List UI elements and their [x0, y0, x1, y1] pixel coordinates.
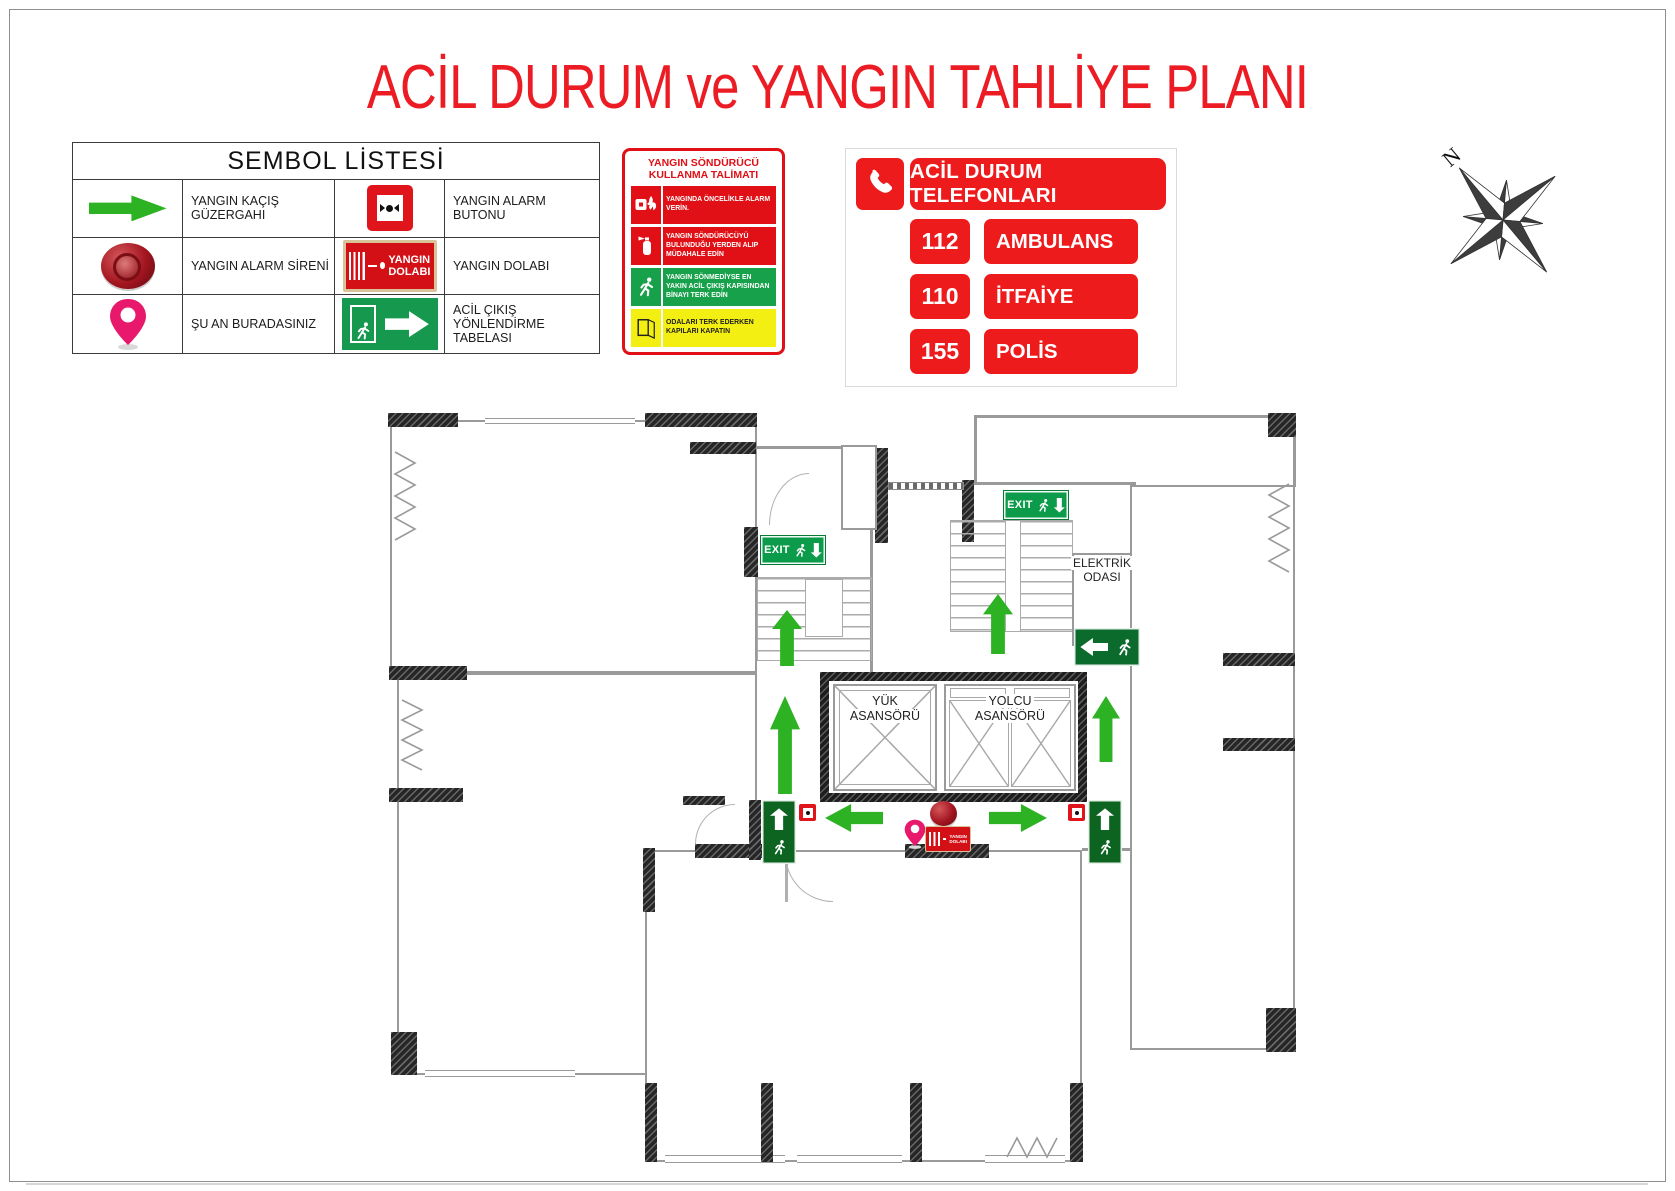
window	[797, 1155, 902, 1163]
instruction-text: YANGIN SÖNMEDİYSE EN YAKIN ACİL ÇIKIŞ KA…	[663, 268, 776, 306]
legend-cell	[73, 180, 183, 238]
compass-rose-icon: N	[1385, 128, 1595, 303]
wall-stub	[744, 527, 758, 577]
fire-extinguisher-icon	[631, 227, 661, 265]
exit-sign-vertical-right	[1088, 800, 1122, 864]
wall-stub	[683, 796, 725, 805]
wall-stub	[388, 413, 458, 427]
wall-stub	[910, 1083, 922, 1162]
wall-stub	[1223, 738, 1295, 751]
fire-alarm-button-icon	[1068, 804, 1085, 821]
stair-landing	[805, 579, 843, 637]
legend-cell	[73, 238, 183, 296]
symbol-legend-table: SEMBOL LİSTESİ YANGIN KAÇIŞ GÜZERGAHI YA…	[72, 142, 600, 354]
phone-number-155: 155	[910, 329, 970, 374]
escape-route-arrow-left	[825, 804, 883, 832]
cabinet-sign-line2: DOLABI	[949, 839, 967, 844]
phone-handset-icon	[856, 158, 904, 210]
instruction-item: YANGINDA ÖNCELİKLE ALARM VERİN.	[631, 186, 776, 224]
room-bottom-hall	[645, 850, 1082, 1162]
instruction-text: ODALARI TERK EDERKEN KAPILARI KAPATIN	[663, 309, 776, 347]
cabinet-sign-line2: DOLABI	[388, 266, 430, 278]
compass-north-label: N	[1437, 142, 1465, 171]
page-title: ACİL DURUM ve YANGIN TAHLİYE PLANI	[151, 52, 1525, 123]
wall-stub	[389, 788, 463, 802]
escape-route-arrow-right	[989, 804, 1047, 832]
fire-cabinet-sign-icon: YANGIN DOLABI	[343, 240, 437, 292]
open-door-icon	[631, 309, 661, 347]
zigzag-wall-symbol	[1005, 1134, 1063, 1160]
freight-elevator-label: YÜK ASANSÖRÜ	[833, 694, 937, 724]
phone-label-polis: POLİS	[984, 329, 1138, 374]
instruction-item: YANGIN SÖNMEDİYSE EN YAKIN ACİL ÇIKIŞ KA…	[631, 268, 776, 306]
exit-sign-left-stair: EXIT	[760, 535, 826, 565]
wall-stub	[389, 666, 467, 680]
wall	[974, 482, 1136, 485]
fire-alarm-button-icon	[799, 804, 816, 821]
emergency-phones-panel: ACİL DURUM TELEFONLARI 112 AMBULANS 110 …	[845, 148, 1177, 387]
legend-cell	[335, 180, 445, 238]
zigzag-wall-symbol	[392, 450, 418, 542]
ground-line	[26, 1183, 1648, 1185]
fire-alarm-button-icon	[367, 185, 413, 231]
legend-label: YANGIN ALARM SİRENİ	[183, 238, 335, 296]
chain-wall-symbol	[888, 482, 964, 490]
window	[425, 1070, 575, 1077]
legend-cell	[73, 295, 183, 353]
wall-stub	[1268, 413, 1296, 437]
legend-label: YANGIN DOLABI	[445, 238, 599, 296]
emergency-exit-sign-icon	[342, 298, 438, 350]
wall-stub	[1070, 1083, 1083, 1162]
phones-title: ACİL DURUM TELEFONLARI	[910, 158, 1166, 210]
up-arrow-icon	[1096, 808, 1114, 830]
zigzag-wall-symbol	[1266, 482, 1292, 578]
wall-stub	[761, 1083, 773, 1162]
passenger-elevator-label: YOLCU ASANSÖRÜ	[944, 694, 1076, 724]
instructions-title: YANGIN SÖNDÜRÜCÜ KULLANMA TALİMATI	[631, 157, 776, 181]
legend-label: YANGIN ALARM BUTONU	[445, 180, 599, 238]
up-arrow-icon	[770, 808, 788, 830]
legend-label: ŞU AN BURADASINIZ	[183, 295, 335, 353]
instruction-item: ODALARI TERK EDERKEN KAPILARI KAPATIN	[631, 309, 776, 347]
electrical-room-label: ELEKTRİK ODASI	[1068, 556, 1136, 584]
phone-number-110: 110	[910, 274, 970, 319]
wall-stub	[391, 1032, 417, 1075]
evacuation-plan-page: ACİL DURUM ve YANGIN TAHLİYE PLANI SEMBO…	[0, 0, 1675, 1191]
window	[485, 418, 635, 424]
legend-cell	[335, 295, 445, 353]
fire-siren-icon	[930, 801, 957, 826]
extinguisher-instructions-panel: YANGIN SÖNDÜRÜCÜ KULLANMA TALİMATI YANGI…	[622, 148, 785, 355]
down-arrow-icon	[1054, 498, 1065, 513]
exit-text: EXIT	[764, 544, 790, 556]
down-arrow-icon	[811, 543, 822, 558]
wall-stub	[645, 413, 757, 427]
instruction-text: YANGINDA ÖNCELİKLE ALARM VERİN.	[663, 186, 776, 224]
cabinet-sign-line1: YANGIN	[388, 254, 430, 266]
phone-label-ambulans: AMBULANS	[984, 219, 1138, 264]
floor-plan: YÜK ASANSÖRÜ YOLCU ASANSÖRÜ ELEKTRİK ODA…	[365, 398, 1411, 1188]
shaft-top-center	[841, 445, 877, 530]
phone-label-itfaiye: İTFAİYE	[984, 274, 1138, 319]
left-arrow-icon	[1080, 638, 1108, 656]
room-upper-left	[390, 420, 757, 673]
wall-stub	[645, 1083, 657, 1162]
zigzag-wall-symbol	[399, 698, 425, 778]
running-man-icon	[631, 268, 661, 306]
escape-route-arrow-up	[770, 696, 800, 794]
stair-divider	[1005, 520, 1021, 632]
exit-text: EXIT	[1007, 499, 1033, 511]
exit-sign-left-pointing	[1074, 628, 1140, 666]
wall	[974, 415, 977, 485]
exit-sign-right-stair: EXIT	[1003, 490, 1069, 520]
instruction-item: YANGIN SÖNDÜRÜCÜYÜ BULUNDUĞU YERDEN ALIP…	[631, 227, 776, 265]
wall	[974, 415, 1295, 418]
legend-cell: YANGIN DOLABI	[335, 238, 445, 296]
legend-title: SEMBOL LİSTESİ	[73, 143, 599, 180]
exit-sign-vertical-left	[762, 800, 796, 864]
wall-stub	[690, 442, 756, 454]
location-pin-icon	[107, 297, 149, 351]
legend-label: ACİL ÇIKIŞ YÖNLENDİRME TABELASI	[445, 295, 599, 353]
legend-label: YANGIN KAÇIŞ GÜZERGAHI	[183, 180, 335, 238]
escape-route-arrow-icon	[89, 195, 167, 221]
location-pin-icon	[903, 816, 927, 852]
wall	[757, 446, 843, 449]
fire-cabinet-sign-icon: YANGIN DOLABI	[925, 826, 971, 852]
wall-stub	[643, 848, 655, 912]
door-arc	[769, 473, 809, 525]
wall-stub	[1266, 1008, 1296, 1052]
instruction-text: YANGIN SÖNDÜRÜCÜYÜ BULUNDUĞU YERDEN ALIP…	[663, 227, 776, 265]
wall-stub	[1223, 653, 1295, 666]
wall-stub	[749, 800, 761, 860]
phone-number-112: 112	[910, 219, 970, 264]
fire-siren-icon	[99, 241, 157, 291]
hand-alarm-flame-icon	[631, 186, 661, 224]
escape-route-arrow-up	[1092, 696, 1120, 762]
